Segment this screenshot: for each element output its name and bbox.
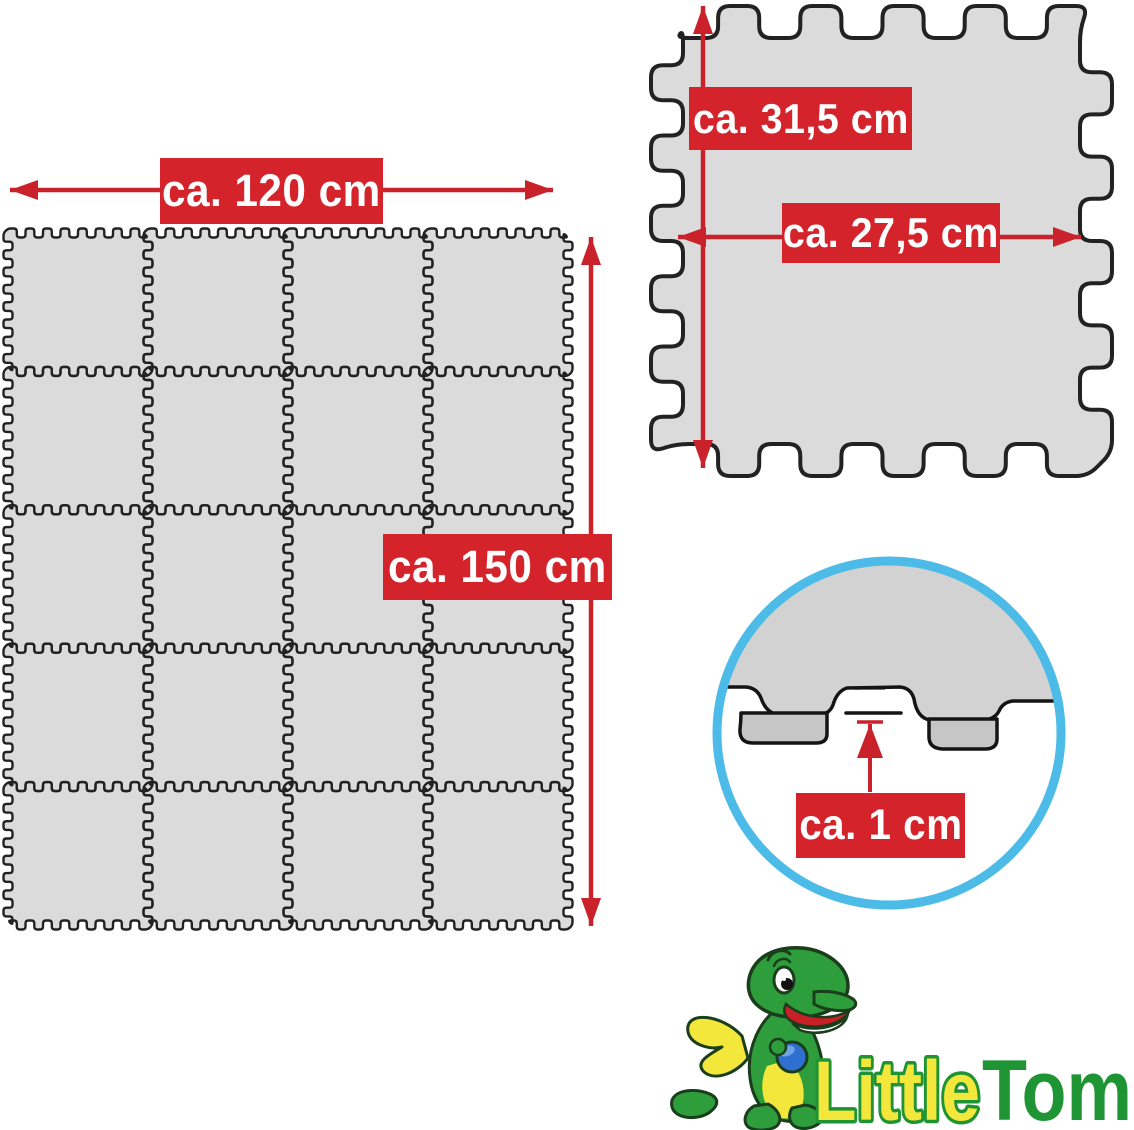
- mat-width-label-text: ca. 120 cm: [162, 165, 381, 217]
- dragon-wing: [688, 1017, 748, 1076]
- mat-tile: [284, 367, 433, 514]
- mat-tile: [424, 229, 573, 376]
- mat-edge-face-left: [740, 713, 827, 743]
- dragon-eye-glint: [782, 977, 786, 981]
- dragon-snout: [814, 991, 856, 1010]
- mat-tile: [284, 644, 433, 791]
- mat-edge-face-right: [929, 719, 997, 749]
- thickness-label: ca. 1 cm: [796, 793, 965, 858]
- logo-text-tom: Tom: [982, 1043, 1132, 1130]
- mat-tile: [424, 367, 573, 514]
- mat-tile: [4, 229, 153, 376]
- mat-tile: [4, 644, 153, 791]
- mat-width-arrow-head: [10, 180, 38, 200]
- mat-height-label-text: ca. 150 cm: [388, 541, 607, 593]
- tile-height-arrow-head: [693, 6, 713, 34]
- mat-width-label: ca. 120 cm: [160, 158, 383, 224]
- mat-tile: [4, 367, 153, 514]
- dragon-foot-left: [745, 1104, 780, 1130]
- tile-height-arrow-head: [693, 440, 713, 468]
- mat-tile: [4, 782, 153, 929]
- thickness-label-text: ca. 1 cm: [799, 801, 962, 850]
- mat-tile: [284, 229, 433, 376]
- thickness-bottom-arrow-head: [857, 724, 883, 758]
- dragon-tail: [672, 1090, 717, 1117]
- mat-height-arrow-head: [581, 898, 601, 926]
- tile-height-label: ca. 31,5 cm: [689, 87, 912, 150]
- mat-height-arrow-head: [581, 237, 601, 265]
- dragon-hand: [770, 1039, 786, 1055]
- mat-tile: [144, 644, 293, 791]
- mat-tile: [424, 644, 573, 791]
- mat-tile: [424, 782, 573, 929]
- mat-tile: [4, 505, 153, 652]
- mat-tile: [144, 367, 293, 514]
- mat-tile: [144, 229, 293, 376]
- mat-width-arrow-head: [525, 180, 553, 200]
- product-dimension-diagram: Little Tom ca. 120 cm ca. 150 cm ca. 31,…: [0, 0, 1134, 1130]
- tile-width-label: ca. 27,5 cm: [782, 203, 1000, 263]
- tile-height-label-text: ca. 31,5 cm: [693, 95, 909, 143]
- logo-text-little: Little: [814, 1044, 980, 1130]
- mat-tile: [144, 505, 293, 652]
- mat-height-label: ca. 150 cm: [383, 534, 612, 600]
- mat-tile: [284, 782, 433, 929]
- tile-width-label-text: ca. 27,5 cm: [783, 209, 999, 257]
- mat-tile: [144, 782, 293, 929]
